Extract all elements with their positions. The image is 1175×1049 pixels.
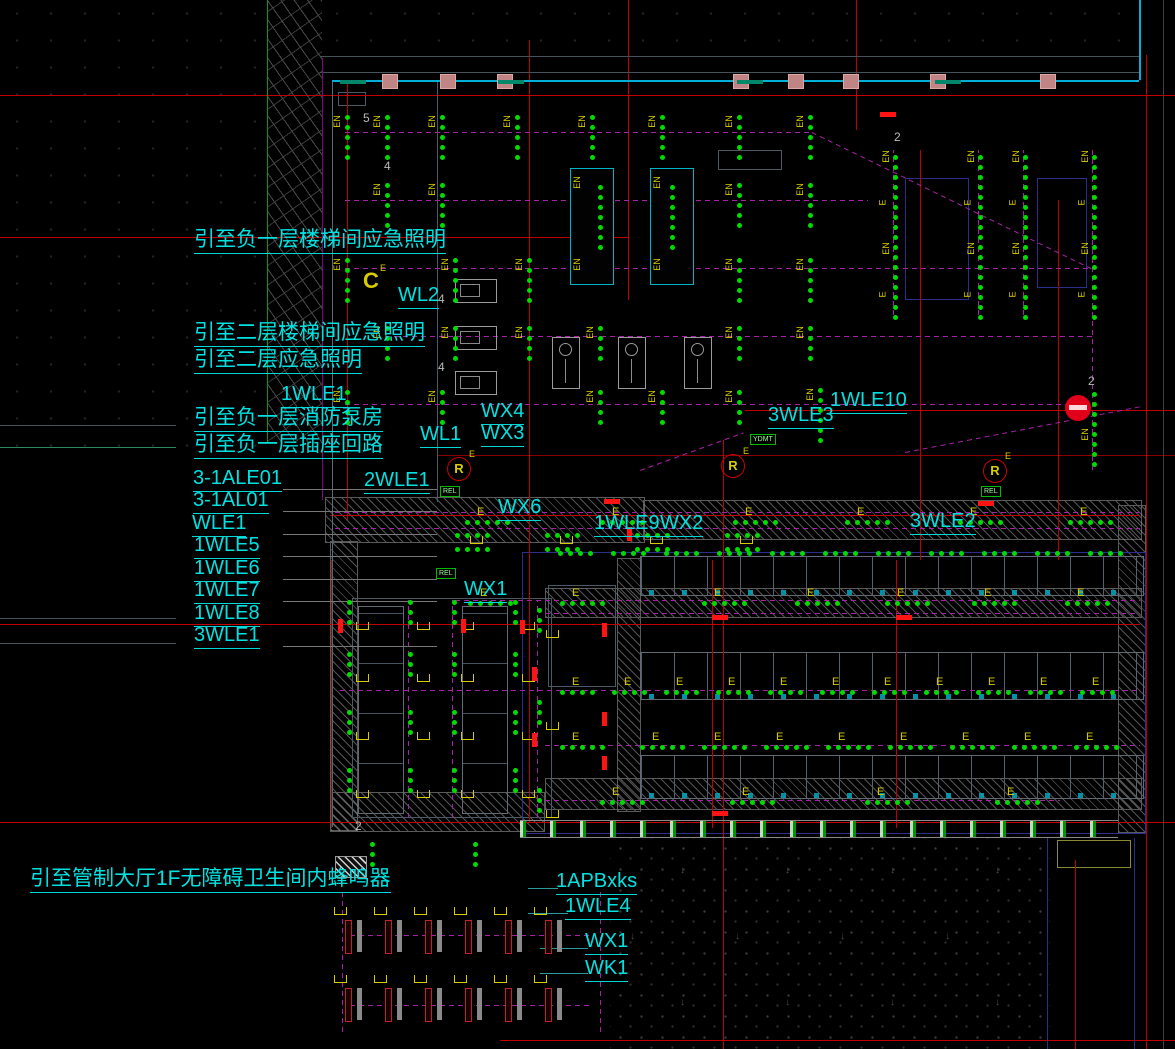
emergency-light-row <box>885 601 930 606</box>
light-dot <box>1048 690 1053 695</box>
light-dot <box>888 745 893 750</box>
emergency-light-row <box>876 551 911 556</box>
circuit-1wle1: 1WLE1 <box>281 384 347 408</box>
fixture-bracket <box>356 622 369 630</box>
grid-line <box>0 425 176 426</box>
light-dot <box>893 215 898 220</box>
light-dot <box>453 258 458 263</box>
light-dot <box>960 745 965 750</box>
light-dot <box>1092 452 1097 457</box>
light-dot <box>808 183 813 188</box>
light-dot <box>726 690 731 695</box>
light-tag: E <box>676 677 683 688</box>
light-dot <box>590 135 595 140</box>
light-dot <box>1092 285 1097 290</box>
escalator-en-tag: EN <box>653 176 662 189</box>
light-dot <box>408 600 413 605</box>
light-tag: E <box>988 677 995 688</box>
light-dot <box>998 520 1003 525</box>
brick-hatch-band <box>268 0 322 443</box>
light-dot <box>645 547 650 552</box>
light-dot <box>598 390 603 395</box>
light-dot <box>905 800 910 805</box>
light-dot <box>893 235 898 240</box>
emergency-light-column <box>513 600 518 625</box>
light-dot <box>1025 800 1030 805</box>
fixture-bracket <box>650 536 663 544</box>
turnstile-bar <box>545 988 552 1022</box>
light-dot <box>1075 601 1080 606</box>
door-sill <box>737 80 763 84</box>
emergency-light-column <box>808 258 813 303</box>
light-dot <box>598 225 603 230</box>
grid-line <box>0 447 176 448</box>
grid-line <box>283 511 437 512</box>
light-dot <box>735 547 740 552</box>
light-dot <box>1118 551 1123 556</box>
light-dot <box>1092 215 1097 220</box>
top-wall-door <box>843 74 859 89</box>
emergency-light-column <box>385 115 390 160</box>
grid-line <box>0 618 176 619</box>
light-dot <box>978 315 983 320</box>
light-tag: EN <box>333 258 342 271</box>
fixture-bracket <box>470 536 483 544</box>
light-dot <box>818 388 823 393</box>
light-dot <box>840 690 845 695</box>
light-dot <box>598 410 603 415</box>
circuit-2wle1: 2WLE1 <box>364 470 430 494</box>
light-dot <box>978 155 983 160</box>
light-dot <box>440 115 445 120</box>
light-dot <box>1023 295 1028 300</box>
light-dot <box>732 745 737 750</box>
light-dot <box>1012 551 1017 556</box>
light-dot <box>515 145 520 150</box>
light-dot <box>670 245 675 250</box>
light-dot <box>980 745 985 750</box>
light-dot <box>408 672 413 677</box>
light-dot <box>753 520 758 525</box>
emergency-light-column <box>347 768 352 793</box>
light-dot <box>635 547 640 552</box>
light-dot <box>670 195 675 200</box>
light-dot <box>598 205 603 210</box>
light-dot <box>527 268 532 273</box>
emergency-light-row <box>995 800 1040 805</box>
light-dot <box>1098 551 1103 556</box>
light-dot <box>610 800 615 805</box>
light-dot <box>1065 601 1070 606</box>
door-sill <box>340 80 366 84</box>
bottom-wall-doors <box>520 820 1118 838</box>
light-dot <box>1052 745 1057 750</box>
light-dot <box>1045 551 1050 556</box>
light-dot <box>1035 551 1040 556</box>
fixture-bracket <box>414 975 427 983</box>
light-dot <box>1023 235 1028 240</box>
cad-canvas[interactable]: ↓↓↓↓↓↓↓↓↓↓↓↓ENENENENENENENENENENENENENEN… <box>0 0 1175 1049</box>
emergency-light-row <box>664 690 699 695</box>
turnstile-bar <box>425 988 432 1022</box>
light-dot <box>660 135 665 140</box>
light-dot <box>408 662 413 667</box>
grid-line <box>283 556 437 557</box>
light-dot <box>660 400 665 405</box>
turnstile-bar <box>357 920 362 952</box>
light-tag: E <box>1007 787 1014 798</box>
light-dot <box>1092 315 1097 320</box>
light-dot <box>893 245 898 250</box>
light-dot <box>664 690 669 695</box>
light-dot <box>978 235 983 240</box>
light-tag: EN <box>586 326 595 339</box>
light-tag: E <box>832 677 839 688</box>
light-dot <box>598 235 603 240</box>
light-dot <box>642 690 647 695</box>
light-dot <box>978 225 983 230</box>
emergency-light-column <box>808 115 813 160</box>
light-dot <box>1092 185 1097 190</box>
light-dot <box>600 800 605 805</box>
grid-line <box>856 0 857 130</box>
light-dot <box>853 551 858 556</box>
wire-line <box>545 613 1140 614</box>
light-dot <box>784 745 789 750</box>
light-dot <box>896 551 901 556</box>
light-dot <box>588 551 593 556</box>
emergency-light-column <box>537 788 542 813</box>
light-dot <box>598 245 603 250</box>
light-dot <box>598 400 603 405</box>
light-tag: E <box>1078 199 1087 205</box>
light-dot <box>537 788 542 793</box>
light-dot <box>370 842 375 847</box>
light-dot <box>622 690 627 695</box>
light-dot <box>527 346 532 351</box>
light-tag: EN <box>1081 428 1090 441</box>
light-tag: EN <box>333 115 342 128</box>
light-dot <box>800 551 805 556</box>
paving-arrow-mark: ↓ <box>680 866 685 876</box>
light-dot <box>886 551 891 556</box>
light-tag: EN <box>578 115 587 128</box>
grid-line <box>437 455 1175 456</box>
light-dot <box>1114 745 1119 750</box>
light-dot <box>1108 551 1113 556</box>
fixture-bracket <box>534 907 547 915</box>
light-dot <box>846 745 851 750</box>
light-dot <box>737 356 742 361</box>
fixture-bracket <box>546 810 559 818</box>
emergency-light-column <box>440 390 445 425</box>
emergency-light-row <box>872 690 907 695</box>
c-symbol-sup: E <box>380 264 386 273</box>
light-dot <box>742 601 747 606</box>
light-dot <box>527 288 532 293</box>
light-dot <box>345 135 350 140</box>
light-tag: EN <box>515 258 524 271</box>
light-dot <box>537 710 542 715</box>
light-dot <box>1110 690 1115 695</box>
light-dot <box>670 745 675 750</box>
emergency-light-row <box>702 745 747 750</box>
circuit-3-1al01: 3-1AL01 <box>193 490 269 514</box>
light-dot <box>712 601 717 606</box>
light-dot <box>385 203 390 208</box>
light-dot <box>1023 185 1028 190</box>
circuit-1wle4: 1WLE4 <box>565 896 631 920</box>
turnstile-bar <box>437 920 442 952</box>
light-dot <box>1084 745 1089 750</box>
circuit-3wle3: 3WLE3 <box>768 405 834 429</box>
light-dot <box>885 520 890 525</box>
fire-device-mark <box>978 501 994 506</box>
light-dot <box>560 601 565 606</box>
light-dot <box>808 203 813 208</box>
light-tag: EN <box>725 326 734 339</box>
fire-device-mark <box>712 615 728 620</box>
light-dot <box>788 690 793 695</box>
light-dot <box>630 800 635 805</box>
light-dot <box>598 195 603 200</box>
light-dot <box>737 115 742 120</box>
emergency-light-row <box>725 547 760 552</box>
light-dot <box>560 745 565 750</box>
light-tag: E <box>900 732 907 743</box>
light-tag: EN <box>796 183 805 196</box>
light-dot <box>345 298 350 303</box>
light-dot <box>408 768 413 773</box>
fixture-bracket <box>356 790 369 798</box>
fan-coil-unit <box>455 326 497 350</box>
light-dot <box>347 710 352 715</box>
light-dot <box>347 672 352 677</box>
emergency-light-column <box>347 600 352 625</box>
fixture-bracket <box>494 907 507 915</box>
grid-line <box>1075 860 1076 1049</box>
paving-arrow-mark: ↓ <box>995 998 1000 1008</box>
equipment-unit <box>552 337 580 389</box>
light-dot <box>345 145 350 150</box>
circuit-wl1: WL1 <box>420 424 461 448</box>
paving-arrow-mark: ↓ <box>735 932 740 942</box>
turnstile-bar <box>477 920 482 952</box>
light-dot <box>906 551 911 556</box>
light-dot <box>893 155 898 160</box>
light-dot <box>408 788 413 793</box>
light-dot <box>1022 745 1027 750</box>
grid-line <box>0 624 1140 625</box>
light-dot <box>885 601 890 606</box>
fixture-bracket <box>454 975 467 983</box>
light-dot <box>893 265 898 270</box>
grid-number: 2 <box>1088 375 1095 387</box>
light-dot <box>1038 690 1043 695</box>
light-dot <box>808 213 813 218</box>
circuit-wx1-bottom: WX1 <box>585 931 628 955</box>
light-dot <box>527 326 532 331</box>
light-dot <box>537 628 542 633</box>
light-dot <box>660 125 665 130</box>
light-dot <box>1023 315 1028 320</box>
light-dot <box>598 326 603 331</box>
light-tag: EN <box>725 115 734 128</box>
fire-device-mark <box>532 733 537 747</box>
turnstile-bar <box>425 920 432 954</box>
light-dot <box>1023 265 1028 270</box>
light-tag: E <box>964 291 973 297</box>
emergency-light-column <box>737 115 742 160</box>
light-dot <box>453 326 458 331</box>
light-dot <box>452 768 457 773</box>
circuit-1wle9: 1WLE9 <box>594 513 660 537</box>
light-dot <box>732 601 737 606</box>
light-dot <box>768 690 773 695</box>
top-wall-door <box>382 74 398 89</box>
light-dot <box>893 295 898 300</box>
light-dot <box>600 601 605 606</box>
emergency-light-row <box>768 690 803 695</box>
light-dot <box>702 601 707 606</box>
top-wall-door <box>1040 74 1056 89</box>
light-tag: E <box>884 677 891 688</box>
turnstile-bar <box>465 920 472 954</box>
light-dot <box>475 520 480 525</box>
light-dot <box>485 520 490 525</box>
light-dot <box>737 410 742 415</box>
light-dot <box>934 690 939 695</box>
light-dot <box>978 165 983 170</box>
light-dot <box>978 195 983 200</box>
light-dot <box>760 800 765 805</box>
grid-number: 2 <box>894 131 901 143</box>
light-dot <box>978 215 983 220</box>
light-dot <box>1023 195 1028 200</box>
paving-arrow-mark: ↓ <box>785 998 790 1008</box>
light-dot <box>733 520 738 525</box>
emergency-light-row <box>560 690 595 695</box>
light-dot <box>440 193 445 198</box>
emergency-light-row <box>1012 745 1057 750</box>
light-dot <box>737 145 742 150</box>
light-dot <box>345 288 350 293</box>
paving-arrow-mark: ↓ <box>890 998 895 1008</box>
fire-device-mark <box>602 756 607 770</box>
paving-arrow-mark: ↓ <box>630 932 635 942</box>
light-dot <box>590 125 595 130</box>
light-tag: EN <box>441 258 450 271</box>
paving-arrow-mark: ↓ <box>995 866 1000 876</box>
emergency-light-column <box>513 768 518 793</box>
light-dot <box>670 235 675 240</box>
light-dot <box>670 225 675 230</box>
emergency-light-row <box>640 745 685 750</box>
light-dot <box>1080 690 1085 695</box>
light-dot <box>513 730 518 735</box>
light-dot <box>527 336 532 341</box>
turnstile-bar <box>465 988 472 1022</box>
emergency-light-column <box>737 183 742 228</box>
light-dot <box>621 551 626 556</box>
emergency-light-column <box>345 115 350 160</box>
emergency-light-column <box>440 115 445 160</box>
light-dot <box>978 185 983 190</box>
light-tag: E <box>936 677 943 688</box>
light-dot <box>750 800 755 805</box>
light-dot <box>978 520 983 525</box>
emergency-light-row <box>1080 690 1115 695</box>
light-dot <box>808 326 813 331</box>
light-dot <box>408 778 413 783</box>
light-dot <box>978 305 983 310</box>
light-dot <box>545 547 550 552</box>
emergency-light-column <box>978 155 983 320</box>
fire-device-mark <box>604 499 620 504</box>
light-dot <box>408 610 413 615</box>
light-dot <box>737 288 742 293</box>
callout-f2-stair-emergency: 引至二层楼梯间应急照明 <box>194 322 425 347</box>
light-tag: E <box>742 787 749 798</box>
emergency-light-row <box>716 690 751 695</box>
rel-device-box: REL <box>436 568 456 579</box>
light-dot <box>737 346 742 351</box>
light-tag: EN <box>373 115 382 128</box>
light-dot <box>737 135 742 140</box>
light-dot <box>1006 690 1011 695</box>
light-dot <box>440 183 445 188</box>
light-dot <box>954 690 959 695</box>
light-dot <box>385 145 390 150</box>
light-dot <box>915 601 920 606</box>
light-dot <box>660 155 665 160</box>
light-dot <box>805 601 810 606</box>
light-dot <box>345 155 350 160</box>
light-dot <box>347 662 352 667</box>
light-tag: EN <box>1012 150 1021 163</box>
light-dot <box>895 800 900 805</box>
light-dot <box>875 800 880 805</box>
light-dot <box>508 601 513 606</box>
fire-device-mark <box>461 619 466 633</box>
light-tag: E <box>714 588 721 599</box>
fixture-bracket <box>546 630 559 638</box>
emergency-light-column <box>453 258 458 303</box>
ydmt-device-box: YDMT <box>750 434 776 445</box>
emergency-light-column <box>527 258 532 303</box>
light-dot <box>1023 225 1028 230</box>
light-dot <box>872 690 877 695</box>
light-dot <box>598 185 603 190</box>
light-dot <box>513 768 518 773</box>
light-dot <box>893 305 898 310</box>
light-dot <box>440 125 445 130</box>
turnstile-bar <box>357 988 362 1020</box>
light-dot <box>1092 422 1097 427</box>
light-dot <box>790 551 795 556</box>
light-dot <box>1092 265 1097 270</box>
light-dot <box>893 285 898 290</box>
light-dot <box>808 336 813 341</box>
r-symbol-sup: E <box>1005 452 1011 461</box>
r-symbol-sup: E <box>743 447 749 456</box>
light-dot <box>452 672 457 677</box>
light-dot <box>513 620 518 625</box>
light-dot <box>347 730 352 735</box>
light-dot <box>1012 601 1017 606</box>
emergency-light-row <box>826 745 871 750</box>
light-dot <box>818 438 823 443</box>
